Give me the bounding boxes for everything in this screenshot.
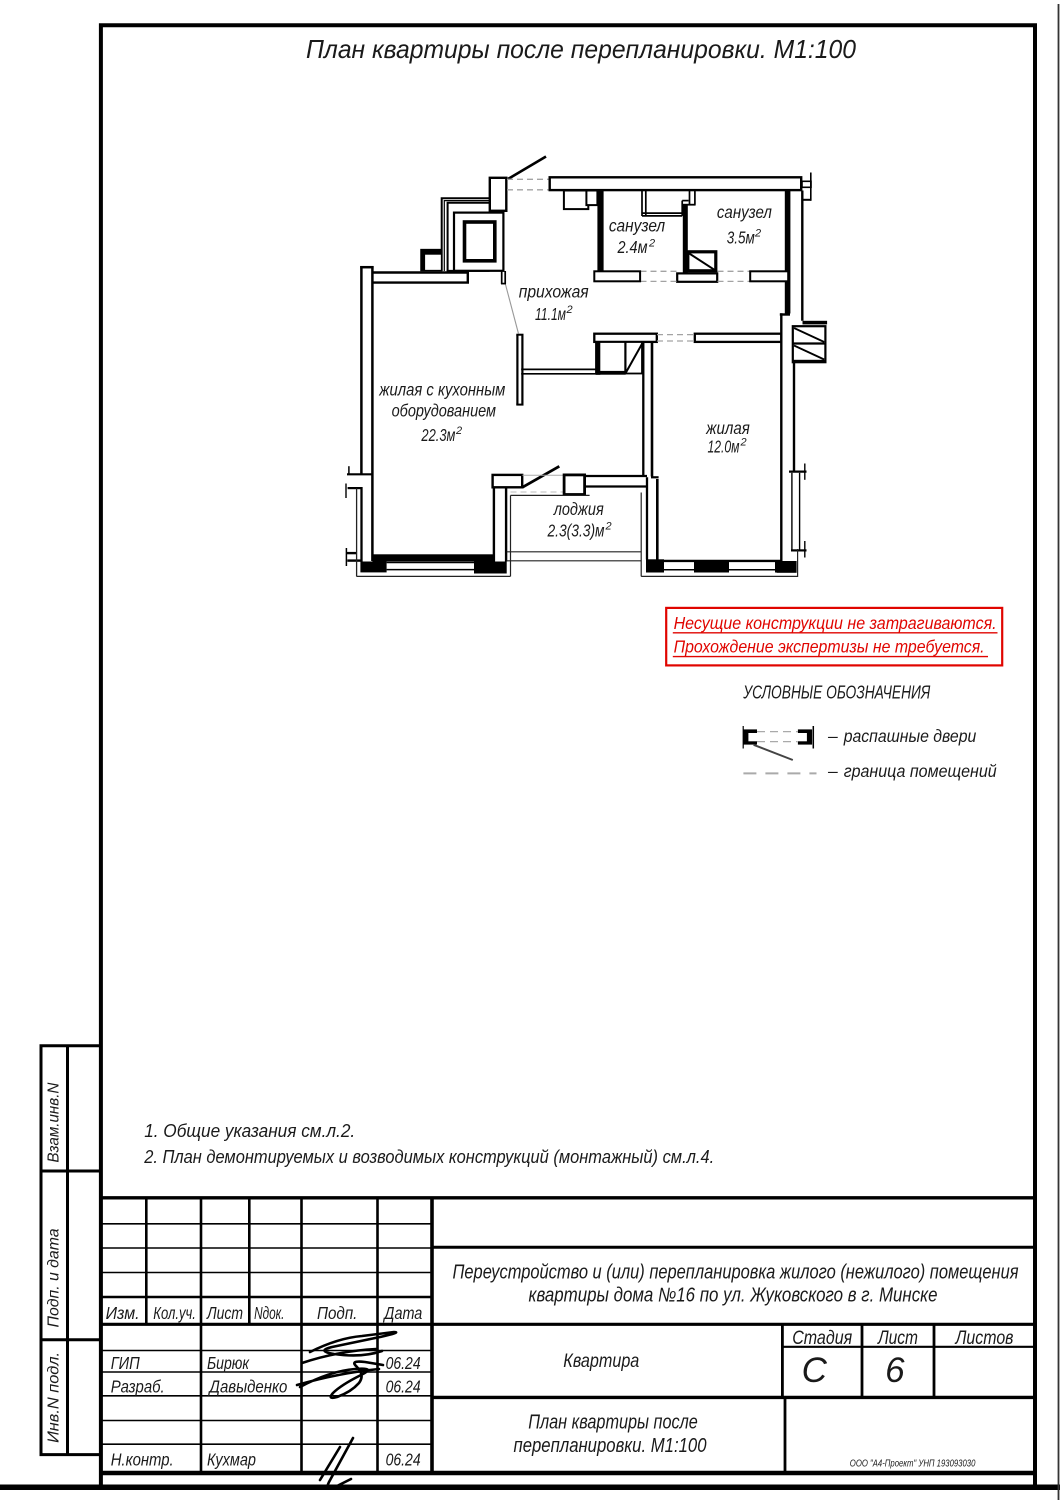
svg-text:прихожая: прихожая: [519, 282, 589, 302]
svg-text:План квартиры после: План квартиры после: [528, 1412, 698, 1434]
svg-text:ГИП: ГИП: [111, 1353, 140, 1373]
svg-text:12.0м: 12.0м: [708, 437, 740, 457]
svg-text:Дата: Дата: [383, 1303, 423, 1323]
svg-text:–: –: [827, 761, 838, 781]
svg-text:Лист: Лист: [206, 1303, 243, 1323]
svg-text:2: 2: [740, 437, 747, 449]
svg-text:Переустройство и (или) перепла: Переустройство и (или) перепланировка жи…: [453, 1262, 1019, 1284]
svg-text:Изм.: Изм.: [106, 1303, 140, 1323]
svg-text:2. План демонтируемых и возвод: 2. План демонтируемых и возводимых конст…: [143, 1147, 714, 1167]
svg-text:распашные двери: распашные двери: [843, 726, 977, 746]
svg-text:2: 2: [648, 238, 655, 250]
svg-text:оборудованием: оборудованием: [392, 401, 496, 421]
svg-text:Разраб.: Разраб.: [111, 1377, 165, 1397]
svg-text:Nдок.: Nдок.: [254, 1303, 284, 1323]
svg-text:лоджия: лоджия: [553, 499, 604, 519]
svg-text:Взам.инв.N: Взам.инв.N: [46, 1082, 63, 1163]
svg-text:2: 2: [455, 425, 462, 437]
svg-text:Листов: Листов: [954, 1328, 1014, 1349]
svg-text:жилая с кухонным: жилая с кухонным: [378, 380, 505, 400]
svg-text:Кухмар: Кухмар: [207, 1450, 256, 1470]
svg-text:санузел: санузел: [717, 202, 772, 222]
svg-text:06.24: 06.24: [386, 1377, 421, 1397]
svg-text:3.5м: 3.5м: [727, 228, 755, 248]
svg-text:Давыденко: Давыденко: [208, 1377, 288, 1397]
svg-text:2: 2: [754, 228, 761, 240]
svg-text:граница помещений: граница помещений: [844, 761, 997, 781]
svg-text:–: –: [827, 726, 838, 746]
svg-text:План квартиры после перепланир: План квартиры после перепланировки. М1:1…: [306, 34, 857, 64]
svg-text:2: 2: [566, 304, 573, 316]
svg-text:квартиры дома №16 по ул. Жуков: квартиры дома №16 по ул. Жуковского в г.…: [529, 1285, 938, 1307]
svg-text:2.4м: 2.4м: [617, 237, 648, 257]
svg-text:2.3(3.3)м: 2.3(3.3)м: [547, 521, 605, 541]
svg-text:6: 6: [885, 1351, 905, 1390]
svg-text:Подп.: Подп.: [317, 1303, 357, 1323]
svg-text:Н.контр.: Н.контр.: [111, 1450, 174, 1470]
svg-text:жилая: жилая: [705, 418, 750, 438]
svg-text:санузел: санузел: [609, 216, 665, 236]
svg-text:06.24: 06.24: [386, 1353, 421, 1373]
svg-text:ООО "А4-Проект" УНП 193093030: ООО "А4-Проект" УНП 193093030: [850, 1459, 976, 1470]
svg-text:Бирюк: Бирюк: [207, 1353, 250, 1373]
svg-text:1. Общие указания см.л.2.: 1. Общие указания см.л.2.: [144, 1121, 355, 1141]
svg-text:22.3м: 22.3м: [421, 425, 456, 445]
svg-text:С: С: [802, 1351, 828, 1390]
svg-text:УСЛОВНЫЕ ОБОЗНАЧЕНИЯ: УСЛОВНЫЕ ОБОЗНАЧЕНИЯ: [743, 681, 931, 702]
svg-text:Лист: Лист: [876, 1328, 918, 1349]
svg-text:перепланировки. М1:100: перепланировки. М1:100: [514, 1435, 707, 1457]
svg-text:2: 2: [605, 521, 612, 533]
svg-text:Инв.N подл.: Инв.N подл.: [46, 1352, 63, 1443]
svg-text:Несущие конструкции не затраги: Несущие конструкции не затрагиваются.: [674, 613, 997, 633]
svg-text:Подп. и дата: Подп. и дата: [46, 1228, 63, 1327]
svg-text:06.24: 06.24: [386, 1450, 421, 1470]
svg-text:Кол.уч.: Кол.уч.: [153, 1303, 196, 1323]
svg-text:Стадия: Стадия: [792, 1328, 852, 1349]
svg-text:Прохождение экспертизы не треб: Прохождение экспертизы не требуется.: [674, 637, 985, 657]
svg-text:Квартира: Квартира: [563, 1350, 639, 1372]
svg-text:11.1м: 11.1м: [535, 304, 566, 324]
